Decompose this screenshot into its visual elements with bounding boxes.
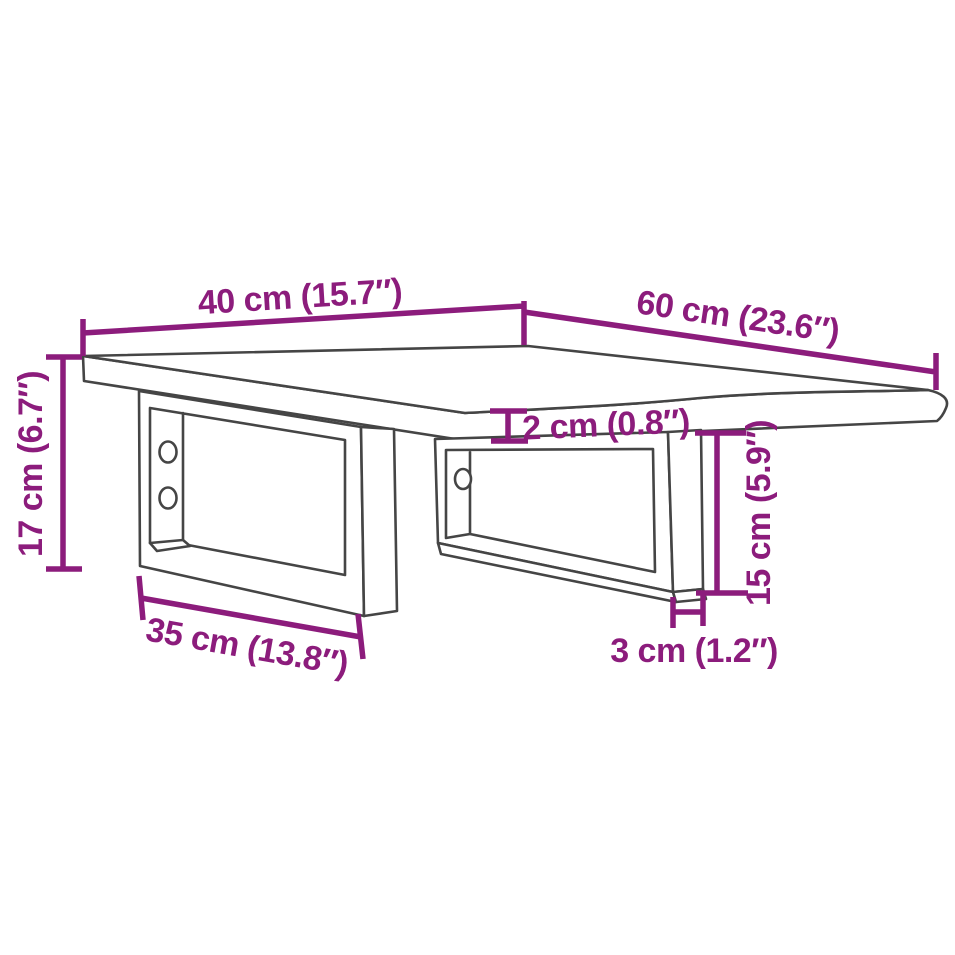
screw-hole (160, 488, 177, 509)
dimension-label-bracket-profile: 3 cm (1.2″) (610, 632, 778, 670)
dimension-label-bracket-depth: 35 cm (13.8″) (143, 611, 351, 684)
dimension-overall-height: 17 cm (6.7″) (12, 357, 82, 569)
screw-hole (160, 442, 177, 463)
screw-hole (455, 469, 471, 489)
dimension-bracket-height: 15 cm (5.9″) (695, 420, 778, 606)
shelf-dimension-drawing: 40 cm (15.7″) 60 cm (23.6″) 17 cm (6.7″)… (0, 0, 955, 955)
dimension-label-top-thickness: 2 cm (0.8″) (521, 402, 690, 447)
dimension-line (46, 357, 82, 569)
right-bracket (435, 430, 706, 602)
dimension-label-overall-height: 17 cm (6.7″) (12, 371, 50, 557)
dimension-label-bracket-height: 15 cm (5.9″) (740, 420, 778, 606)
dimension-top-width: 40 cm (15.7″) (83, 272, 524, 356)
right-bracket-side-face (668, 430, 703, 592)
dimension-diagram: 40 cm (15.7″) 60 cm (23.6″) 17 cm (6.7″)… (0, 0, 955, 955)
left-bracket-side-face (361, 427, 397, 616)
